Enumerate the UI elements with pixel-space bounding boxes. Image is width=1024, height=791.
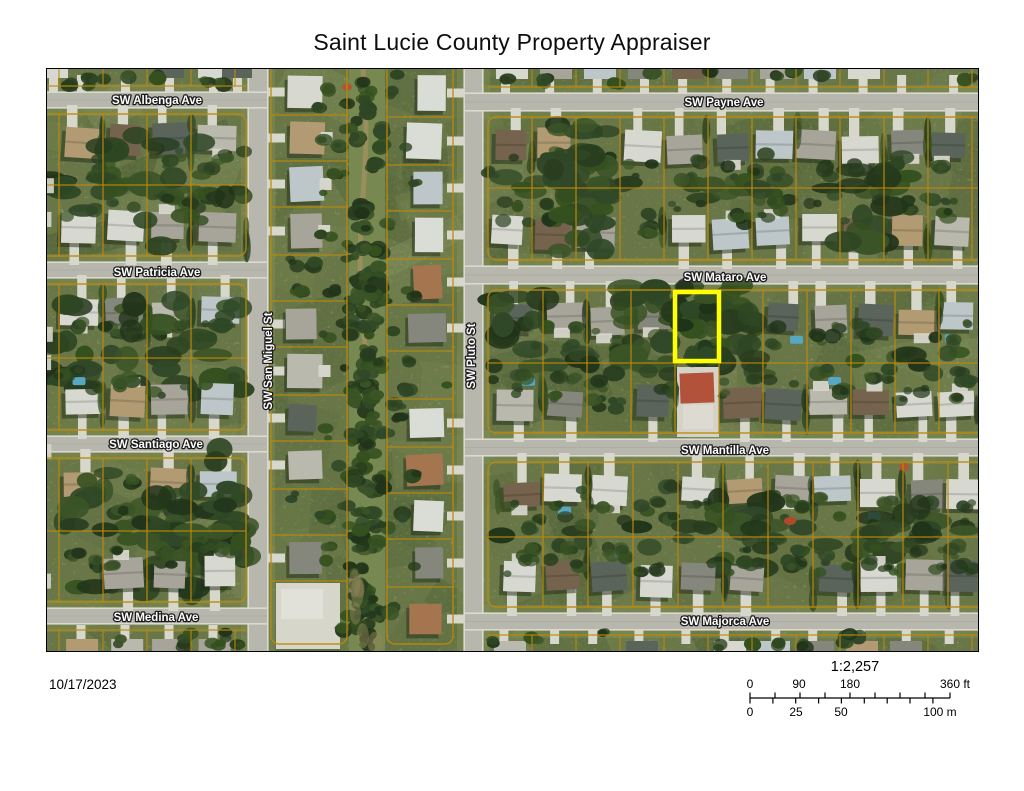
svg-text:SW Medina Ave: SW Medina Ave [114, 612, 199, 624]
svg-text:SW Albenga Ave: SW Albenga Ave [112, 95, 202, 107]
svg-text:SW Payne Ave: SW Payne Ave [684, 97, 763, 109]
svg-text:SW San Miguel St: SW San Miguel St [263, 312, 275, 409]
svg-text:SW Patricia Ave: SW Patricia Ave [114, 267, 201, 279]
svg-text:SW Mantilla Ave: SW Mantilla Ave [681, 445, 769, 457]
svg-text:SW Pluto St: SW Pluto St [466, 323, 478, 388]
svg-text:SW Mataro Ave: SW Mataro Ave [684, 272, 767, 284]
svg-text:SW Majorca Ave: SW Majorca Ave [681, 616, 770, 628]
svg-text:SW Santiago Ave: SW Santiago Ave [109, 439, 203, 451]
